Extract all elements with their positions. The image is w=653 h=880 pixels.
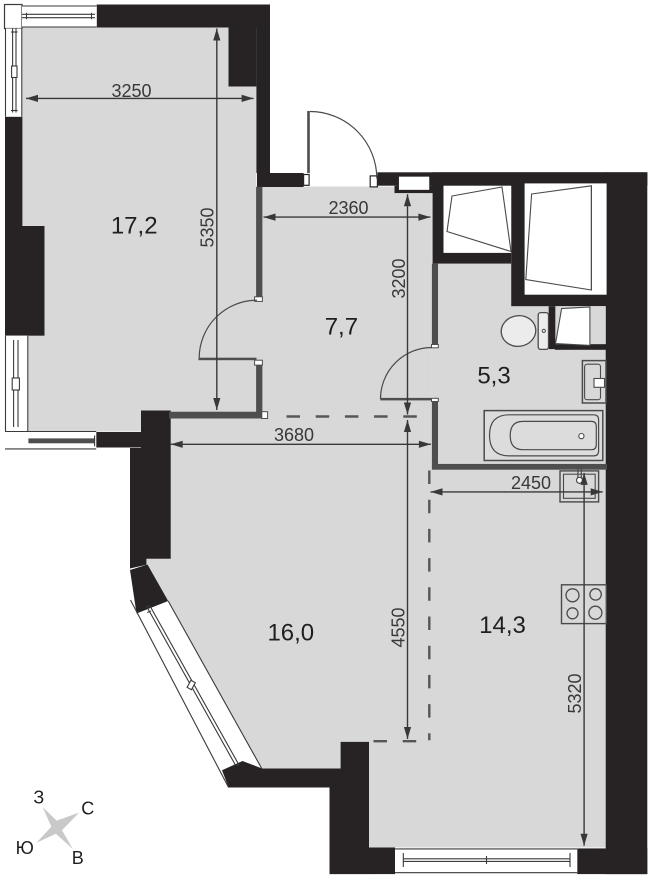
svg-text:2360: 2360 (328, 198, 368, 218)
svg-text:С: С (81, 799, 94, 819)
svg-text:5320: 5320 (565, 673, 585, 713)
svg-text:Ю: Ю (16, 838, 34, 858)
svg-text:3250: 3250 (111, 81, 151, 101)
svg-text:17,2: 17,2 (111, 213, 158, 240)
svg-text:5350: 5350 (198, 207, 218, 247)
svg-text:В: В (72, 848, 84, 868)
svg-text:2450: 2450 (511, 473, 551, 493)
svg-text:16,0: 16,0 (267, 620, 314, 647)
svg-text:5,3: 5,3 (477, 363, 510, 390)
svg-text:7,7: 7,7 (325, 313, 358, 340)
svg-text:14,3: 14,3 (479, 612, 526, 639)
svg-text:4550: 4550 (389, 607, 409, 647)
svg-text:З: З (33, 788, 44, 808)
svg-text:3680: 3680 (274, 425, 314, 445)
svg-text:3200: 3200 (389, 258, 409, 298)
